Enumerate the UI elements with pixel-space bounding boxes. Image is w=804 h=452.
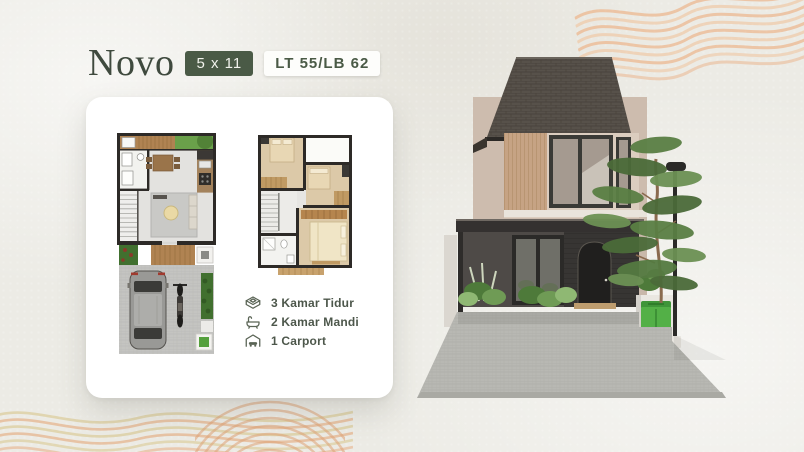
feature-bathrooms: 2 Kamar Mandi (244, 313, 359, 330)
living-room (151, 193, 197, 237)
ground-floor-plan (117, 133, 216, 356)
size-badge: 5 x 11 (185, 51, 253, 76)
entry-deck (151, 245, 195, 267)
arc-decoration-bottom (195, 396, 345, 452)
feature-label: 2 Kamar Mandi (271, 315, 359, 329)
upper-stairs (261, 191, 297, 233)
master-bedroom (299, 208, 349, 265)
feature-bedrooms: 3 Kamar Tidur (244, 294, 359, 311)
front-hedge (119, 245, 138, 265)
bed-icon (244, 294, 262, 312)
carport-icon (244, 332, 262, 350)
washer (122, 138, 135, 148)
house-front-render (404, 33, 804, 408)
bedroom-2 (306, 165, 349, 205)
car-top-view (128, 271, 169, 349)
page-title: Novo (88, 44, 174, 82)
bathtub-icon (244, 313, 262, 331)
bathroom-2 (261, 236, 296, 265)
stairs (120, 191, 139, 241)
header: Novo 5 x 11 LT 55/LB 62 (88, 44, 380, 82)
floorplan-card: 3 Kamar Tidur 2 Kamar Mandi (86, 97, 393, 398)
bathroom-1 (120, 149, 149, 191)
flyer-page: Novo 5 x 11 LT 55/LB 62 (0, 0, 804, 452)
driveway (417, 312, 726, 398)
feature-label: 3 Kamar Tidur (271, 296, 354, 310)
feature-carport: 1 Carport (244, 332, 359, 349)
bedroom-1 (261, 138, 303, 188)
feature-list: 3 Kamar Tidur 2 Kamar Mandi (244, 294, 359, 349)
kitchen (197, 151, 213, 193)
boundary-wall-left (444, 235, 457, 327)
void-area (306, 138, 349, 162)
wood-slat-panel (504, 133, 547, 210)
upper-floor-plan (258, 135, 352, 277)
floor-sill-band (504, 210, 647, 217)
arched-door (578, 242, 611, 307)
area-badge: LT 55/LB 62 (264, 51, 380, 76)
feature-label: 1 Carport (271, 334, 326, 348)
